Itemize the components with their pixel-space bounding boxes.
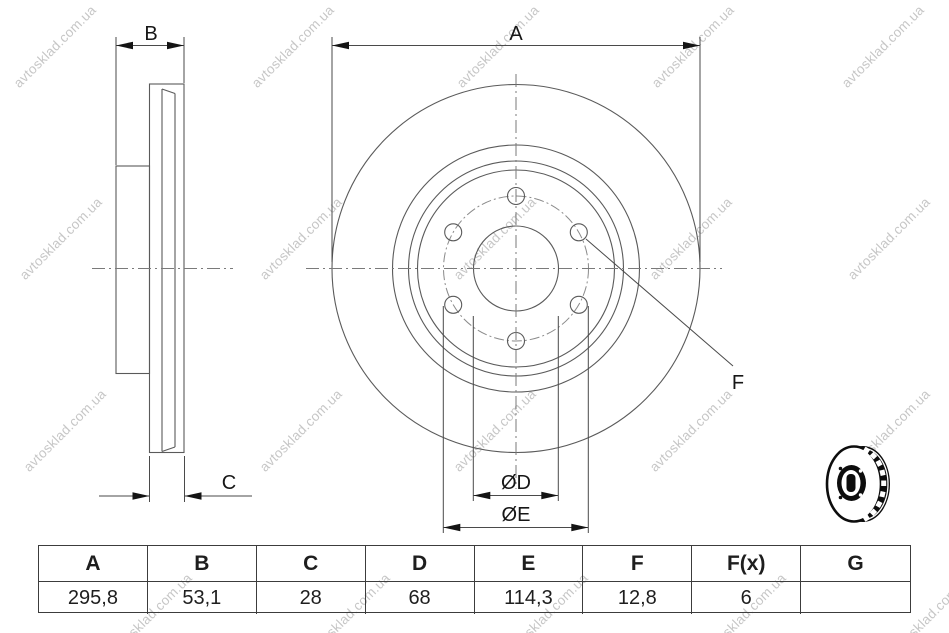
arrowhead-left-icon xyxy=(116,42,133,50)
brake-disc-spec-page: avtosklad.com.uaavtosklad.com.uaavtoskla… xyxy=(0,0,949,633)
arrowhead-right-icon xyxy=(167,42,184,50)
spec-header-cell: B xyxy=(148,546,257,582)
brake-disc-3d-icon xyxy=(824,441,896,529)
spec-header-cell: G xyxy=(801,546,910,582)
dimension-A-label: A xyxy=(509,23,523,45)
arrowhead-left-icon xyxy=(185,492,202,500)
technical-drawing-canvas: A B C ØD xyxy=(0,0,949,545)
dimension-D-label: ØD xyxy=(501,472,531,494)
center-bore xyxy=(847,474,856,492)
hat-outline xyxy=(116,166,150,374)
spec-header-cell: C xyxy=(257,546,366,582)
arrowhead-right-icon xyxy=(541,492,558,500)
spec-value-cell: 114,3 xyxy=(475,582,584,614)
spec-value-cell: 28 xyxy=(257,582,366,614)
dimension-B-label: B xyxy=(144,23,157,45)
arrowhead-right-icon xyxy=(571,524,588,532)
spec-header-cell: A xyxy=(39,546,148,582)
spec-table: A B C D E F F(x) G 295,8 53,1 28 68 114,… xyxy=(38,545,911,613)
dimension-C: C xyxy=(99,456,252,502)
arrowhead-right-icon xyxy=(683,42,700,50)
vent-vane-bottom-edge xyxy=(162,447,175,452)
dimension-C-label: C xyxy=(222,472,236,494)
spec-header-cell: F(x) xyxy=(692,546,801,582)
dimension-F: F xyxy=(586,239,744,394)
arrowhead-right-icon xyxy=(133,492,150,500)
center-lines xyxy=(92,74,722,489)
spec-header-cell: E xyxy=(475,546,584,582)
arrowhead-left-icon xyxy=(332,42,349,50)
spec-value-cell: 53,1 xyxy=(148,582,257,614)
vent-vane-top-edge xyxy=(162,89,175,94)
dimension-E-label: ØE xyxy=(502,504,531,526)
spec-value-cell: 12,8 xyxy=(583,582,692,614)
spec-value-cell: 6 xyxy=(692,582,801,614)
spec-value-cell: 68 xyxy=(366,582,475,614)
arrowhead-left-icon xyxy=(443,524,460,532)
spec-value-cell xyxy=(801,582,910,614)
arrowhead-left-icon xyxy=(473,492,490,500)
spec-header-cell: D xyxy=(366,546,475,582)
dimension-F-label: F xyxy=(732,372,744,394)
spec-header-cell: F xyxy=(583,546,692,582)
spec-value-cell: 295,8 xyxy=(39,582,148,614)
